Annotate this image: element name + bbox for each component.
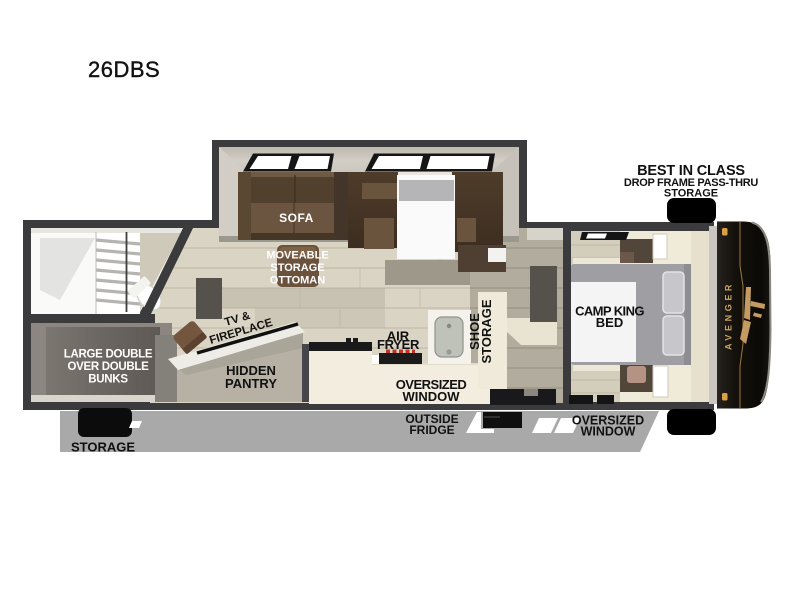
svg-text:STORAGE: STORAGE [479,299,494,363]
svg-text:MOVEABLE: MOVEABLE [266,250,328,262]
svg-text:STORAGE: STORAGE [664,188,718,200]
svg-text:26DBS: 26DBS [88,57,160,82]
svg-text:PANTRY: PANTRY [225,376,277,391]
svg-text:STORAGE: STORAGE [270,262,324,274]
svg-text:STORAGE: STORAGE [71,440,135,455]
svg-text:SOFA: SOFA [279,211,314,225]
svg-text:OVER DOUBLE: OVER DOUBLE [67,361,149,373]
svg-text:AVENGER: AVENGER [724,281,734,350]
svg-text:BED: BED [596,315,623,330]
svg-text:BUNKS: BUNKS [88,374,128,386]
svg-text:LARGE DOUBLE: LARGE DOUBLE [64,349,153,361]
svg-text:OTTOMAN: OTTOMAN [270,275,325,287]
svg-text:WINDOW: WINDOW [581,425,636,439]
svg-text:FRIDGE: FRIDGE [409,423,454,437]
svg-text:FRYER: FRYER [377,337,420,352]
svg-text:WINDOW: WINDOW [402,389,460,404]
